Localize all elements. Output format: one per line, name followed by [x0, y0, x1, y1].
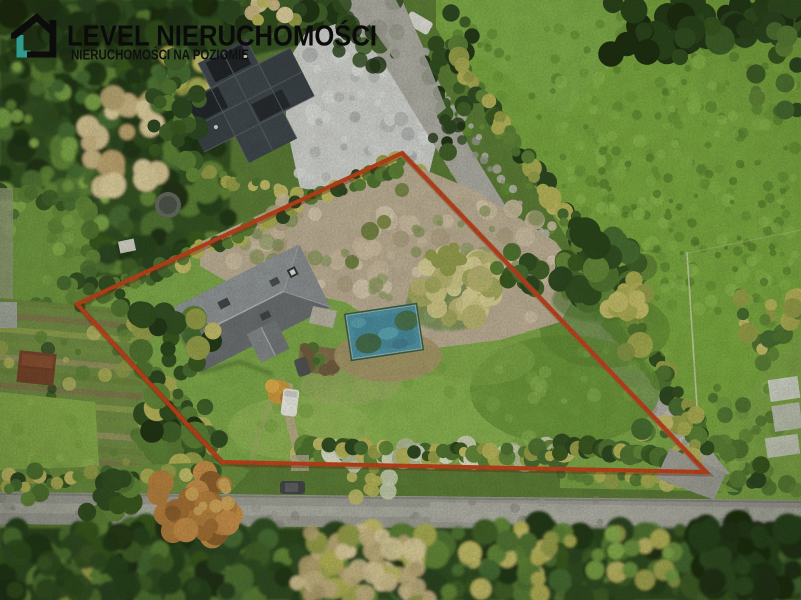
svg-text:NIERUCHOMOŚCI NA POZIOMIE: NIERUCHOMOŚCI NA POZIOMIE	[71, 46, 249, 64]
